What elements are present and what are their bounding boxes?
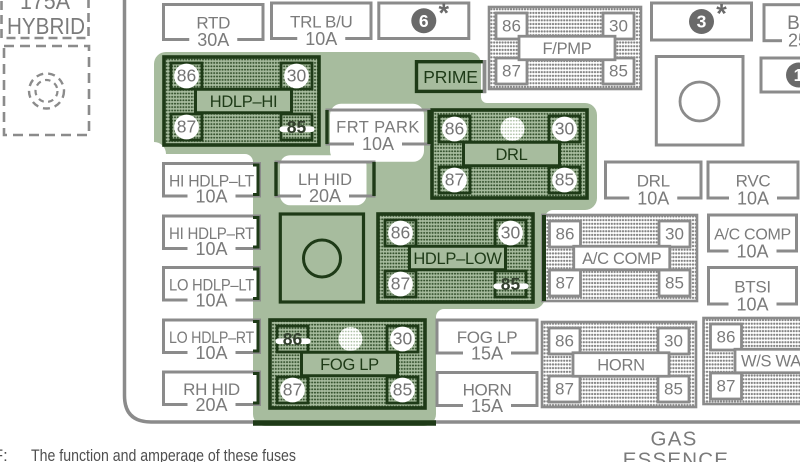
svg-text:30: 30 xyxy=(664,331,683,350)
svg-text:A/C COMP: A/C COMP xyxy=(582,250,661,268)
svg-text:87: 87 xyxy=(177,116,196,136)
svg-text:87: 87 xyxy=(717,376,736,395)
svg-text:The function and amperage of t: The function and amperage of these fuses xyxy=(31,447,296,462)
svg-text:HORN: HORN xyxy=(597,356,644,374)
svg-text:10A: 10A xyxy=(195,343,227,363)
svg-text:86: 86 xyxy=(555,331,574,350)
svg-text:87: 87 xyxy=(556,273,575,292)
svg-text:ESSENCE: ESSENCE xyxy=(623,449,729,462)
svg-text:HYBRID: HYBRID xyxy=(7,13,85,39)
svg-text:85: 85 xyxy=(664,379,683,398)
svg-text:86: 86 xyxy=(177,65,196,85)
svg-text:10A: 10A xyxy=(195,239,227,259)
svg-text:25A: 25A xyxy=(788,31,800,51)
svg-text:87: 87 xyxy=(555,379,574,398)
svg-text:30: 30 xyxy=(555,118,575,138)
svg-text:30: 30 xyxy=(665,224,684,243)
svg-text:HDLP–LOW: HDLP–LOW xyxy=(413,250,502,268)
svg-text:10A: 10A xyxy=(736,294,768,314)
svg-text:86: 86 xyxy=(717,327,736,346)
svg-text:85: 85 xyxy=(501,274,521,294)
svg-text:10A: 10A xyxy=(736,241,768,261)
svg-text:1: 1 xyxy=(794,65,800,85)
svg-text:87: 87 xyxy=(445,169,464,189)
svg-text:15A: 15A xyxy=(471,396,503,416)
svg-text:10A: 10A xyxy=(195,290,227,310)
svg-text:85: 85 xyxy=(609,61,628,80)
svg-text:10A: 10A xyxy=(195,186,227,206)
svg-text:86: 86 xyxy=(283,329,303,349)
svg-text:10A: 10A xyxy=(362,134,394,154)
svg-text:30: 30 xyxy=(393,328,413,348)
svg-text:W/S WA: W/S WA xyxy=(741,353,800,371)
svg-text:86: 86 xyxy=(445,118,464,138)
svg-text:30: 30 xyxy=(609,16,628,35)
svg-text:PRIME: PRIME xyxy=(423,67,477,87)
svg-text:F/PMP: F/PMP xyxy=(543,40,592,58)
svg-text:20A: 20A xyxy=(309,186,341,206)
svg-text:30: 30 xyxy=(501,222,521,242)
svg-text:85: 85 xyxy=(555,169,574,189)
svg-text:GAS: GAS xyxy=(651,428,698,451)
svg-text:10A: 10A xyxy=(637,188,669,208)
svg-text:86: 86 xyxy=(556,224,575,243)
svg-text:85: 85 xyxy=(665,273,684,292)
svg-text:87: 87 xyxy=(283,379,302,399)
svg-text:10A: 10A xyxy=(737,188,769,208)
svg-text:3: 3 xyxy=(697,12,707,32)
svg-text:15A: 15A xyxy=(471,343,503,363)
svg-text:85: 85 xyxy=(287,117,307,137)
svg-text:86: 86 xyxy=(502,16,521,35)
svg-text:175A: 175A xyxy=(20,0,71,14)
svg-text:30A: 30A xyxy=(197,30,229,50)
svg-text:87: 87 xyxy=(391,273,410,293)
svg-text:DRL: DRL xyxy=(495,146,527,164)
svg-text:6: 6 xyxy=(419,11,429,31)
svg-text:86: 86 xyxy=(391,222,410,242)
svg-text:*: * xyxy=(439,0,450,28)
svg-text:*: * xyxy=(716,0,727,29)
svg-text:20A: 20A xyxy=(195,395,227,415)
svg-text:F:: F: xyxy=(0,447,8,462)
svg-text:FOG LP: FOG LP xyxy=(320,356,379,374)
svg-text:87: 87 xyxy=(502,61,521,80)
svg-text:30: 30 xyxy=(287,65,307,85)
svg-text:10A: 10A xyxy=(305,29,337,49)
svg-text:HDLP–HI: HDLP–HI xyxy=(210,93,278,111)
svg-text:85: 85 xyxy=(393,379,412,399)
